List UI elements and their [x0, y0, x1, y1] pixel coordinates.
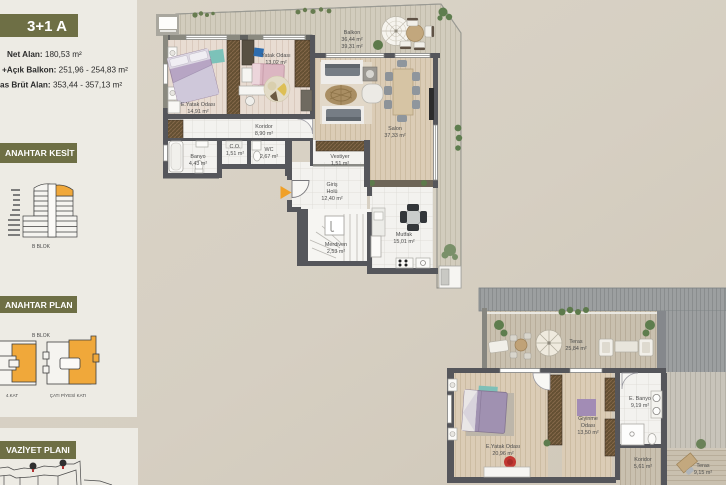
svg-text:Net Alan: 180,53 m²: Net Alan: 180,53 m²: [7, 50, 82, 59]
svg-text:ÇATI PİYESİ KATI: ÇATI PİYESİ KATI: [50, 392, 87, 398]
svg-text:WC: WC: [265, 147, 274, 153]
svg-text:Merdiven: Merdiven: [325, 242, 347, 248]
svg-text:1,51 m²: 1,51 m²: [331, 161, 349, 167]
svg-text:Balkon: Balkon: [344, 30, 360, 36]
svg-text:2,67 m²: 2,67 m²: [260, 154, 278, 160]
svg-text:E. Banyo: E. Banyo: [629, 396, 651, 402]
svg-text:25,84 m²: 25,84 m²: [565, 346, 586, 352]
svg-text:39,31 m²: 39,31 m²: [341, 44, 362, 50]
svg-text:4.KAT: 4.KAT: [6, 393, 18, 398]
svg-text:12,40 m²: 12,40 m²: [321, 196, 342, 202]
svg-text:Giriş: Giriş: [326, 182, 337, 188]
svg-text:Mutfak: Mutfak: [396, 232, 412, 238]
svg-text:8,90 m²: 8,90 m²: [255, 131, 273, 137]
svg-text:ANAHTAR KESİT: ANAHTAR KESİT: [5, 148, 75, 158]
svg-text:VAZİYET PLANI: VAZİYET PLANI: [6, 445, 70, 455]
svg-text:13,50 m²: 13,50 m²: [577, 430, 598, 436]
svg-text:2,53 m²: 2,53 m²: [327, 249, 345, 255]
svg-text:C.O.: C.O.: [229, 144, 240, 150]
svg-text:Yatak Odası: Yatak Odası: [261, 53, 290, 59]
svg-text:9,15 m²: 9,15 m²: [694, 470, 712, 476]
svg-text:Teras: Teras: [569, 339, 582, 345]
svg-text:B BLOK: B BLOK: [32, 244, 51, 250]
svg-text:4,43 m²: 4,43 m²: [189, 161, 207, 167]
svg-text:1,51 m²: 1,51 m²: [226, 151, 244, 157]
svg-text:Esas Brüt Alan: 353,44 - 357,1: Esas Brüt Alan: 353,44 - 357,13 m²: [0, 81, 122, 90]
svg-text:B BLOK: B BLOK: [32, 333, 51, 339]
svg-text:E.Yatak Odası: E.Yatak Odası: [486, 444, 520, 450]
svg-text:Banyo: Banyo: [190, 154, 205, 160]
svg-text:5,61 m²: 5,61 m²: [634, 464, 652, 470]
svg-text:9,19 m²: 9,19 m²: [631, 403, 649, 409]
svg-text:3+1 A: 3+1 A: [27, 18, 67, 35]
svg-text:15,01 m²: 15,01 m²: [393, 239, 414, 245]
svg-text:20,96 m²: 20,96 m²: [492, 451, 513, 457]
svg-text:Vestiyer: Vestiyer: [330, 154, 349, 160]
svg-text:Koridor: Koridor: [255, 124, 273, 130]
svg-text:ANAHTAR PLAN: ANAHTAR PLAN: [5, 300, 73, 310]
svg-text:Teras: Teras: [696, 463, 709, 469]
svg-text:E.Yatak Odası: E.Yatak Odası: [181, 102, 215, 108]
svg-text:Odası: Odası: [581, 423, 595, 429]
svg-text:Koridor: Koridor: [634, 457, 652, 463]
svg-text:Holü: Holü: [326, 189, 337, 195]
svg-text:Salon: Salon: [388, 126, 402, 132]
svg-text:14,91 m²: 14,91 m²: [187, 109, 208, 115]
svg-text:Giyinme: Giyinme: [578, 416, 598, 422]
svg-text:+Açık Balkon: 251,96 - 254,83: +Açık Balkon: 251,96 - 254,83 m²: [2, 66, 128, 75]
svg-text:36,44 m²: 36,44 m²: [341, 37, 362, 43]
svg-text:13,02 m²: 13,02 m²: [265, 60, 286, 66]
svg-text:37,33 m²: 37,33 m²: [384, 133, 405, 139]
